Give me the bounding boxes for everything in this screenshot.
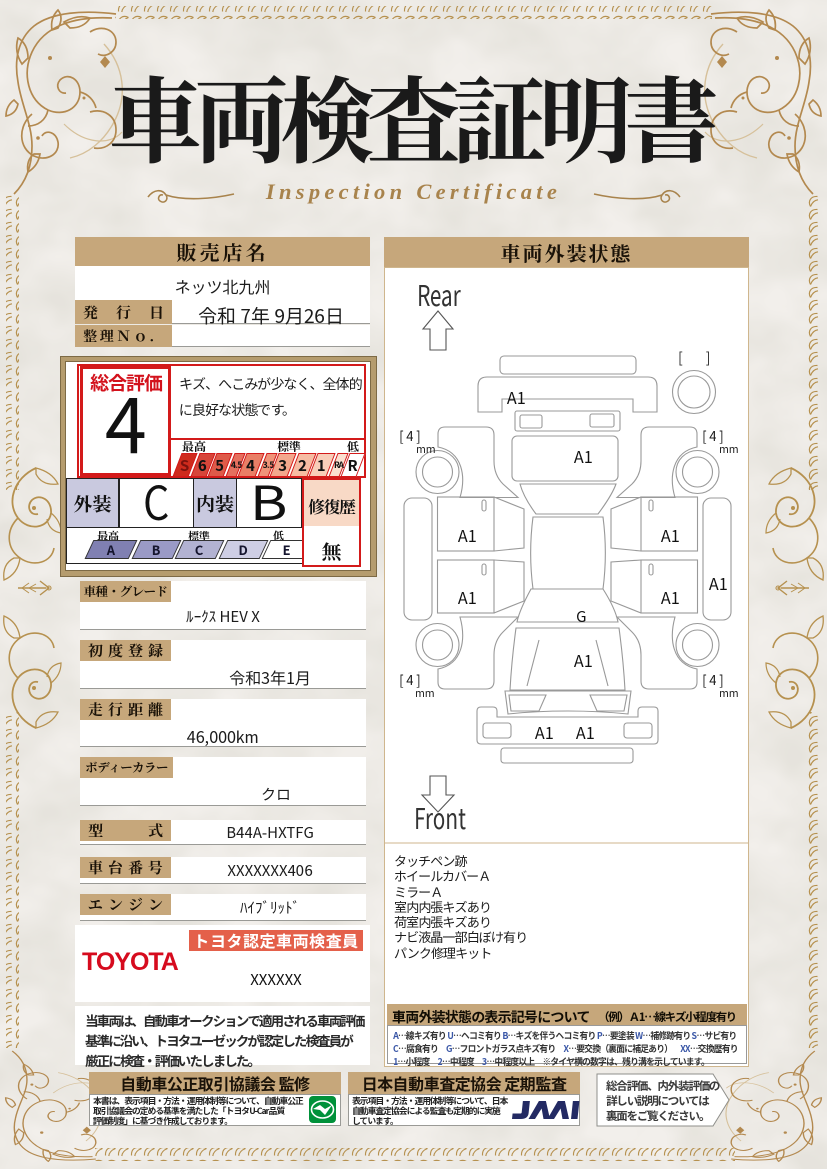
svg-text:A1: A1 — [573, 648, 593, 672]
svg-text:A1: A1 — [660, 585, 680, 609]
svg-text:A1: A1 — [534, 720, 554, 744]
svg-text:Front: Front — [414, 797, 466, 838]
svg-text:mm: mm — [416, 442, 435, 457]
svg-text:A1: A1 — [457, 585, 477, 609]
svg-text:A1: A1 — [457, 523, 477, 547]
svg-text:mm: mm — [719, 686, 738, 701]
svg-text:]: ] — [706, 348, 711, 368]
svg-text:A1: A1 — [573, 444, 593, 468]
svg-text:[: [ — [678, 348, 683, 368]
svg-text:mm: mm — [719, 442, 738, 457]
svg-text:A1: A1 — [575, 720, 595, 744]
svg-text:mm: mm — [415, 686, 434, 701]
svg-text:A1: A1 — [708, 571, 728, 595]
svg-text:A1: A1 — [506, 385, 526, 409]
svg-text:Rear: Rear — [417, 274, 461, 315]
svg-text:G: G — [576, 606, 586, 627]
svg-text:A1: A1 — [660, 523, 680, 547]
